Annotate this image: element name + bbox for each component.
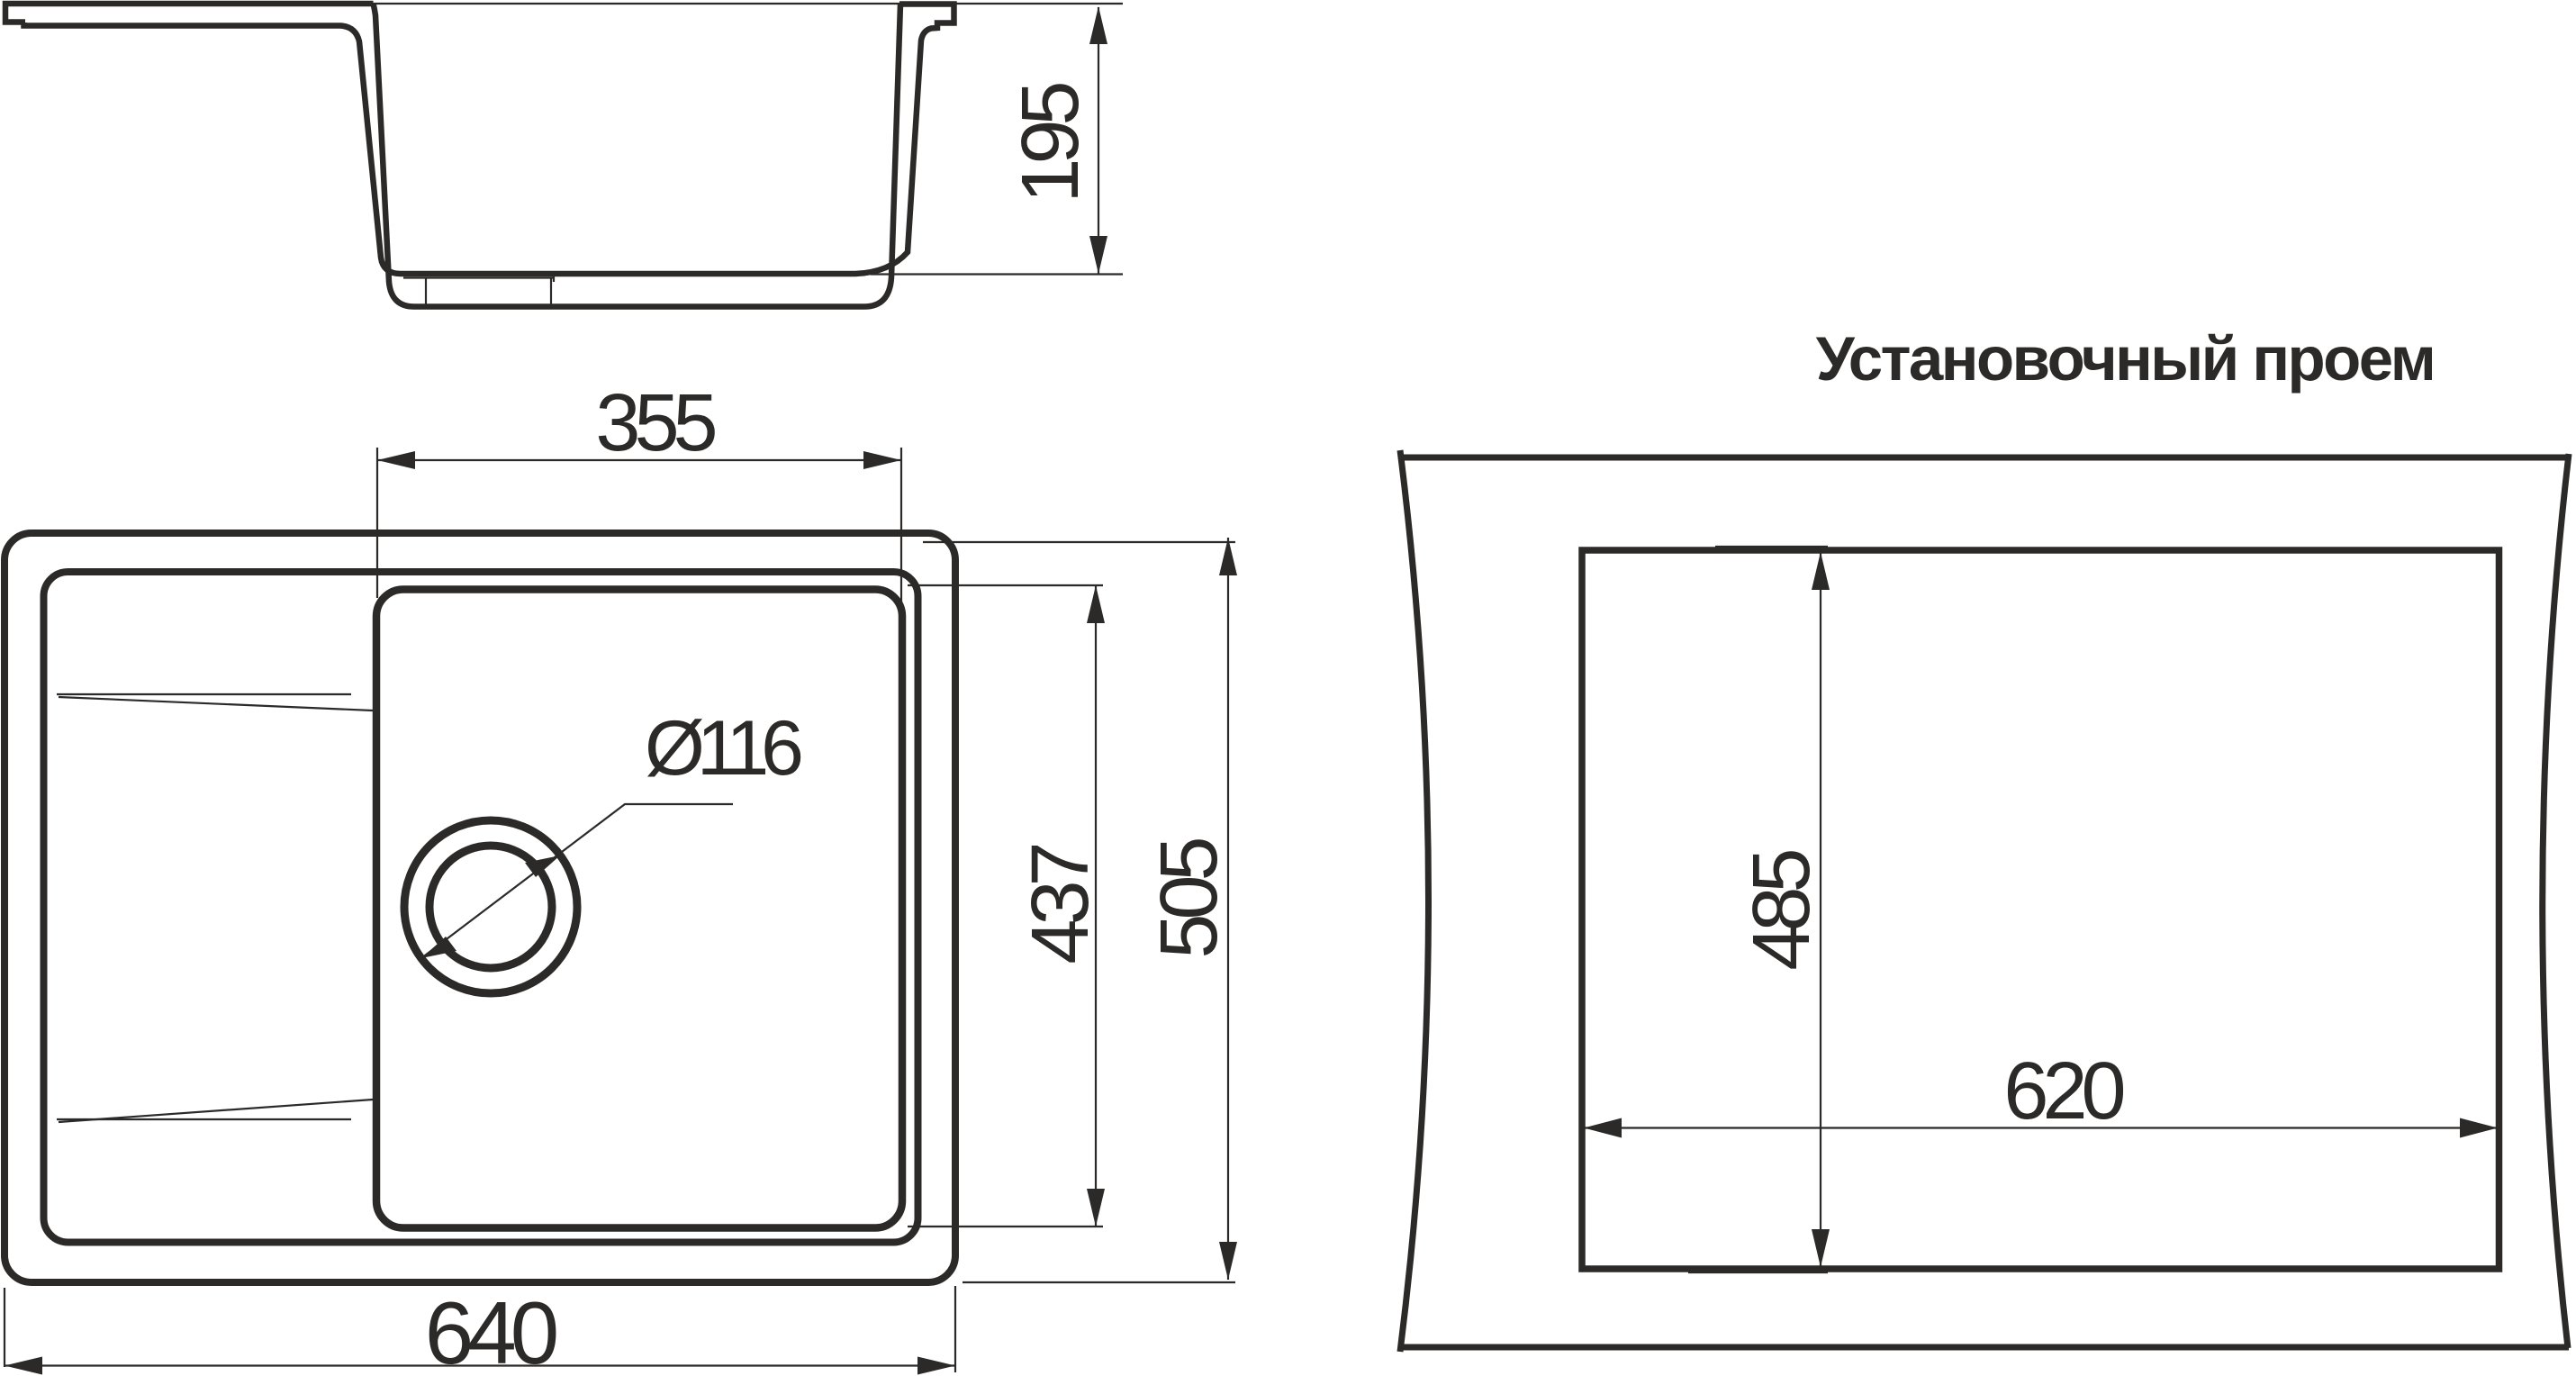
svg-text:195: 195 — [1006, 83, 1096, 203]
svg-text:505: 505 — [1144, 838, 1234, 958]
svg-text:620: 620 — [2003, 1046, 2123, 1136]
svg-text:437: 437 — [1016, 845, 1106, 964]
svg-text:485: 485 — [1737, 850, 1827, 970]
svg-text:Установочный проем: Установочный проем — [1816, 324, 2435, 394]
svg-text:355: 355 — [595, 378, 715, 468]
svg-text:640: 640 — [425, 1283, 556, 1376]
svg-text:Ø116: Ø116 — [645, 705, 801, 792]
